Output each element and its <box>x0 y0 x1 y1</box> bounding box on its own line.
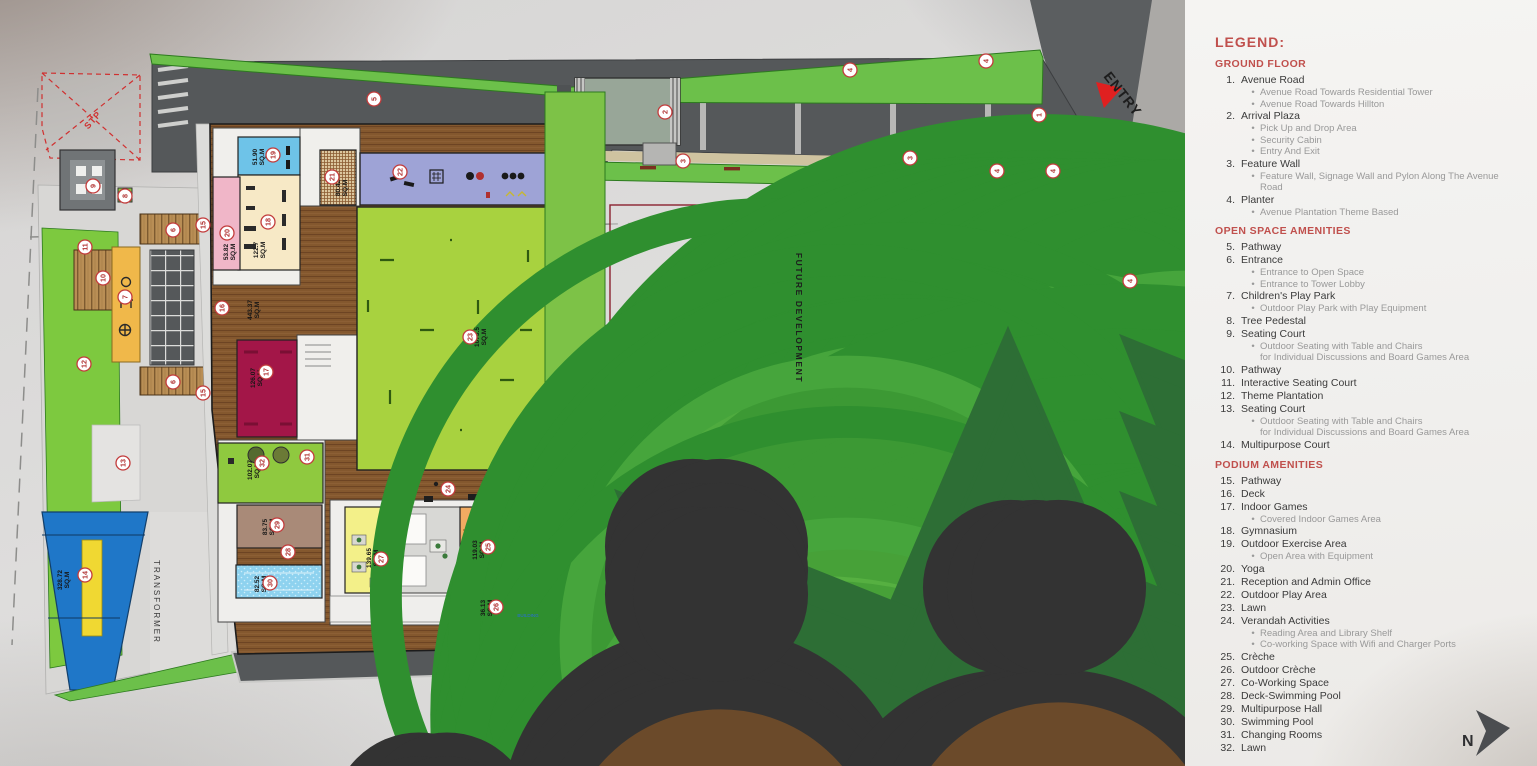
plan-marker-4: 4 <box>990 164 1004 178</box>
svg-text:27: 27 <box>377 555 386 563</box>
svg-text:328.72SQ.M: 328.72SQ.M <box>57 570 71 590</box>
svg-text:14: 14 <box>81 571 90 579</box>
legend-item-label: Deck <box>1235 488 1265 501</box>
legend-section-heading: OPEN SPACE AMENITIES <box>1215 225 1519 237</box>
legend-item-number: 28. <box>1215 690 1235 703</box>
legend-item: 11.Interactive Seating Court <box>1215 377 1519 390</box>
plan-marker-24: 24 <box>441 482 455 496</box>
plan-marker-15: 15 <box>196 218 210 232</box>
legend-item: 28.Deck-Swimming Pool <box>1215 690 1519 703</box>
svg-text:17: 17 <box>262 368 271 376</box>
legend-item: 6.Entrance <box>1215 254 1519 267</box>
legend-item: 24.Verandah Activities <box>1215 615 1519 628</box>
plan-marker-22: 22 <box>393 165 407 179</box>
legend-item: 12.Theme Plantation <box>1215 390 1519 403</box>
plan-marker-3: 3 <box>903 151 917 165</box>
plan-marker-23: 23 <box>463 330 477 344</box>
svg-text:15: 15 <box>199 389 208 397</box>
legend-item-label: Feature Wall <box>1235 158 1300 171</box>
plan-marker-4: 4 <box>1046 164 1060 178</box>
plan-marker-27: 27 <box>374 552 388 566</box>
legend-item-label: Outdoor Exercise Area <box>1235 538 1347 551</box>
legend-item: 13.Seating Court <box>1215 403 1519 416</box>
legend-item-number: 14. <box>1215 439 1235 452</box>
legend-item-number: 22. <box>1215 589 1235 602</box>
legend-item-label: Seating Court <box>1235 403 1305 416</box>
legend-item-label: Pathway <box>1235 364 1281 377</box>
area-label: 328.72SQ.M <box>57 570 71 590</box>
plan-marker-11: 11 <box>78 240 92 254</box>
svg-text:51.90SQ.M: 51.90SQ.M <box>252 148 266 165</box>
svg-text:4: 4 <box>982 59 991 63</box>
plan-marker-31: 31 <box>300 450 314 464</box>
legend-item-number: 10. <box>1215 364 1235 377</box>
legend-item-label: Reception and Admin Office <box>1235 576 1371 589</box>
plan-marker-32: 32 <box>255 456 269 470</box>
svg-text:8: 8 <box>121 194 130 198</box>
legend-item-sub: •Covered Indoor Games Area <box>1215 514 1519 526</box>
svg-text:1: 1 <box>1035 113 1044 117</box>
svg-text:4: 4 <box>993 169 1002 173</box>
plan-marker-25: 25 <box>481 540 495 554</box>
plan-marker-16: 16 <box>215 301 229 315</box>
legend-item-sub: •Entrance to Open Space <box>1215 267 1519 279</box>
legend-item-number: 25. <box>1215 651 1235 664</box>
legend-item: 25.Crèche <box>1215 651 1519 664</box>
legend-section-heading: PODIUM AMENITIES <box>1215 459 1519 471</box>
legend-item: 4.Planter <box>1215 194 1519 207</box>
svg-text:20: 20 <box>223 229 232 237</box>
legend-item-number: 2. <box>1215 110 1235 123</box>
svg-text:6: 6 <box>169 380 178 384</box>
legend-item-label: Swimming Pool <box>1235 716 1313 729</box>
area-label: 53.82SQ.M <box>223 243 237 260</box>
svg-text:53.82SQ.M: 53.82SQ.M <box>223 243 237 260</box>
legend-item: 19.Outdoor Exercise Area <box>1215 538 1519 551</box>
legend-item-number: 8. <box>1215 315 1235 328</box>
legend-item-label: Lawn <box>1235 602 1266 615</box>
legend-item-number: 3. <box>1215 158 1235 171</box>
svg-text:3: 3 <box>906 156 915 160</box>
legend-item-label: Theme Plantation <box>1235 390 1323 403</box>
legend-item-label: Arrival Plaza <box>1235 110 1300 123</box>
svg-text:13: 13 <box>119 459 128 467</box>
legend-item: 18.Gymnasium <box>1215 525 1519 538</box>
legend-item-sub: •Open Area with Equipment <box>1215 551 1519 563</box>
legend-item-number: 9. <box>1215 328 1235 341</box>
svg-text:15: 15 <box>199 221 208 229</box>
legend-item-number: 27. <box>1215 677 1235 690</box>
plan-marker-4: 4 <box>979 54 993 68</box>
legend-item-label: Pathway <box>1235 475 1281 488</box>
legend-item-number: 24. <box>1215 615 1235 628</box>
legend-item: 9.Seating Court <box>1215 328 1519 341</box>
svg-text:3: 3 <box>679 159 688 163</box>
plan-marker-18: 18 <box>261 215 275 229</box>
plan-marker-5: 5 <box>367 92 381 106</box>
legend-item-label: Interactive Seating Court <box>1235 377 1357 390</box>
north-label: N <box>1462 733 1474 750</box>
legend-item-label: Outdoor Crèche <box>1235 664 1316 677</box>
plan-marker-28: 28 <box>281 545 295 559</box>
svg-text:23: 23 <box>466 333 475 341</box>
legend-item: 17.Indoor Games <box>1215 501 1519 514</box>
legend-item-number: 26. <box>1215 664 1235 677</box>
plan-marker-30: 30 <box>263 576 277 590</box>
legend-item-number: 12. <box>1215 390 1235 403</box>
legend-item-label: Children's Play Park <box>1235 290 1335 303</box>
legend-item-number: 1. <box>1215 74 1235 87</box>
legend-item-label: Tree Pedestal <box>1235 315 1306 328</box>
plan-marker-9: 9 <box>86 179 100 193</box>
legend-item: 5.Pathway <box>1215 241 1519 254</box>
legend-item-number: 4. <box>1215 194 1235 207</box>
legend-item-sub: •Outdoor Seating with Table and Chairs <box>1215 416 1519 428</box>
legend-item-sub: •Entry And Exit <box>1215 146 1519 158</box>
legend-item: 1.Avenue Road <box>1215 74 1519 87</box>
plan-marker-10: 10 <box>96 271 110 285</box>
legend-item-label: Avenue Road <box>1235 74 1304 87</box>
legend-item-label: Multipurpose Hall <box>1235 703 1322 716</box>
plan-marker-12: 12 <box>77 357 91 371</box>
svg-text:10: 10 <box>99 274 108 282</box>
legend-item-number: 17. <box>1215 501 1235 514</box>
north-arrow: N <box>1448 702 1518 762</box>
legend-item-label: Pathway <box>1235 241 1281 254</box>
legend-body: GROUND FLOOR1.Avenue Road•Avenue Road To… <box>1215 58 1519 755</box>
legend-item: 14.Multipurpose Court <box>1215 439 1519 452</box>
area-label: 51.90SQ.M <box>252 148 266 165</box>
legend-item: 23.Lawn <box>1215 602 1519 615</box>
legend-item-label: Gymnasium <box>1235 525 1297 538</box>
plan-marker-2: 2 <box>658 105 672 119</box>
svg-text:30: 30 <box>266 579 275 587</box>
legend-item-number: 7. <box>1215 290 1235 303</box>
svg-text:2: 2 <box>661 110 670 114</box>
svg-text:11: 11 <box>81 243 90 251</box>
legend-item-number: 18. <box>1215 525 1235 538</box>
legend-item-label: Entrance <box>1235 254 1283 267</box>
legend-item-number: 23. <box>1215 602 1235 615</box>
legend-panel: LEGEND: GROUND FLOOR1.Avenue Road•Avenue… <box>1185 0 1537 766</box>
svg-text:18: 18 <box>264 218 273 226</box>
legend-item-number: 29. <box>1215 703 1235 716</box>
plan-text: BUILDING <box>517 613 539 618</box>
legend-item-number: 30. <box>1215 716 1235 729</box>
svg-text:29: 29 <box>273 521 282 529</box>
svg-text:12: 12 <box>80 360 89 368</box>
legend-item-number: 32. <box>1215 742 1235 755</box>
plan-marker-6: 6 <box>166 223 180 237</box>
legend-item-sub: •Feature Wall, Signage Wall and Pylon Al… <box>1215 171 1519 194</box>
legend-item: 8.Tree Pedestal <box>1215 315 1519 328</box>
legend-item-sub: •Avenue Road Towards Hillton <box>1215 99 1519 111</box>
plan-text: TRANSFORMER <box>152 560 161 644</box>
legend-item-label: Indoor Games <box>1235 501 1308 514</box>
svg-text:4: 4 <box>1049 169 1058 173</box>
legend-item-number: 6. <box>1215 254 1235 267</box>
legend-item-sub: •Avenue Plantation Theme Based <box>1215 207 1519 219</box>
plan-marker-6: 6 <box>166 375 180 389</box>
legend-item-label: Seating Court <box>1235 328 1305 341</box>
svg-text:31: 31 <box>303 453 312 461</box>
legend-item-label: Deck-Swimming Pool <box>1235 690 1341 703</box>
legend-item: 15.Pathway <box>1215 475 1519 488</box>
svg-text:9: 9 <box>89 184 98 188</box>
legend-item: 7.Children's Play Park <box>1215 290 1519 303</box>
legend-item: 3.Feature Wall <box>1215 158 1519 171</box>
legend-item-sub: •Entrance to Tower Lobby <box>1215 279 1519 291</box>
legend-item-number: 15. <box>1215 475 1235 488</box>
legend-item: 20.Yoga <box>1215 563 1519 576</box>
plan-text: FUTURE DEVELOPMENT <box>794 253 804 383</box>
svg-text:24: 24 <box>444 485 453 493</box>
legend-item-number: 13. <box>1215 403 1235 416</box>
plan-marker-7: 7 <box>118 290 132 304</box>
legend-item-sub: •Avenue Road Towards Residential Tower <box>1215 87 1519 99</box>
svg-text:32: 32 <box>258 459 267 467</box>
plan-marker-20: 20 <box>220 226 234 240</box>
legend-item: 27.Co-Working Space <box>1215 677 1519 690</box>
legend-item: 2.Arrival Plaza <box>1215 110 1519 123</box>
legend-section-heading: GROUND FLOOR <box>1215 58 1519 70</box>
legend-item-label: Yoga <box>1235 563 1265 576</box>
legend-item-label: Changing Rooms <box>1235 729 1322 742</box>
plan-marker-4: 4 <box>1123 274 1137 288</box>
svg-text:28: 28 <box>284 548 293 556</box>
legend-item-sub: •Pick Up and Drop Area <box>1215 123 1519 135</box>
svg-text:25: 25 <box>484 543 493 551</box>
legend-item-sub: •Security Cabin <box>1215 135 1519 147</box>
svg-text:16: 16 <box>218 304 227 312</box>
legend-item-label: Co-Working Space <box>1235 677 1329 690</box>
legend-item-label: Verandah Activities <box>1235 615 1330 628</box>
svg-text:443.37SQ.M: 443.37SQ.M <box>247 300 261 320</box>
legend-item-sub: for Individual Discussions and Board Gam… <box>1215 427 1519 439</box>
legend-item-label: Outdoor Play Area <box>1235 589 1327 602</box>
legend-item-number: 31. <box>1215 729 1235 742</box>
legend-item-number: 16. <box>1215 488 1235 501</box>
legend-item-number: 11. <box>1215 377 1235 390</box>
site-plan: 53.82SQ.M122.7SQ.M51.90SQ.M80.42SQ.M1075… <box>0 0 1185 766</box>
legend-item-label: Planter <box>1235 194 1274 207</box>
plan-marker-17: 17 <box>259 365 273 379</box>
legend-item-number: 20. <box>1215 563 1235 576</box>
legend-item-number: 19. <box>1215 538 1235 551</box>
legend-item-sub: •Co-working Space with Wifi and Charger … <box>1215 639 1519 651</box>
svg-text:26: 26 <box>492 603 501 611</box>
legend-item: 26.Outdoor Crèche <box>1215 664 1519 677</box>
svg-text:4: 4 <box>846 68 855 72</box>
svg-text:7: 7 <box>121 295 130 299</box>
plan-marker-3: 3 <box>676 154 690 168</box>
svg-text:6: 6 <box>169 228 178 232</box>
svg-text:122.7SQ.M: 122.7SQ.M <box>253 241 267 258</box>
legend-item-sub: •Outdoor Seating with Table and Chairs <box>1215 341 1519 353</box>
legend-item-number: 21. <box>1215 576 1235 589</box>
plan-marker-4: 4 <box>843 63 857 77</box>
legend-item: 21.Reception and Admin Office <box>1215 576 1519 589</box>
plan-marker-1: 1 <box>1032 108 1046 122</box>
legend-title: LEGEND: <box>1215 34 1519 50</box>
plan-marker-29: 29 <box>270 518 284 532</box>
north-arrow-icon <box>1476 710 1510 756</box>
plan-marker-21: 21 <box>325 170 339 184</box>
legend-item-label: Crèche <box>1235 651 1275 664</box>
legend-item: 10.Pathway <box>1215 364 1519 377</box>
plan-marker-13: 13 <box>116 456 130 470</box>
legend-item: 16.Deck <box>1215 488 1519 501</box>
legend-item-label: Lawn <box>1235 742 1266 755</box>
area-label: 122.7SQ.M <box>253 241 267 258</box>
svg-text:19: 19 <box>269 151 278 159</box>
area-label: 443.37SQ.M <box>247 300 261 320</box>
legend-item: 22.Outdoor Play Area <box>1215 589 1519 602</box>
site-plan-page: 53.82SQ.M122.7SQ.M51.90SQ.M80.42SQ.M1075… <box>0 0 1537 766</box>
plan-marker-26: 26 <box>489 600 503 614</box>
plan-marker-8: 8 <box>118 189 132 203</box>
legend-item-sub: for Individual Discussions and Board Gam… <box>1215 352 1519 364</box>
legend-item-number: 5. <box>1215 241 1235 254</box>
legend-item-sub: •Outdoor Play Park with Play Equipment <box>1215 303 1519 315</box>
plan-marker-15: 15 <box>196 386 210 400</box>
plan-marker-14: 14 <box>78 568 92 582</box>
legend-item-sub: •Reading Area and Library Shelf <box>1215 628 1519 640</box>
plan-marker-19: 19 <box>266 148 280 162</box>
svg-text:22: 22 <box>396 168 405 176</box>
legend-item-label: Multipurpose Court <box>1235 439 1330 452</box>
svg-text:21: 21 <box>328 173 337 181</box>
svg-text:5: 5 <box>370 97 379 101</box>
svg-text:4: 4 <box>1126 279 1135 283</box>
